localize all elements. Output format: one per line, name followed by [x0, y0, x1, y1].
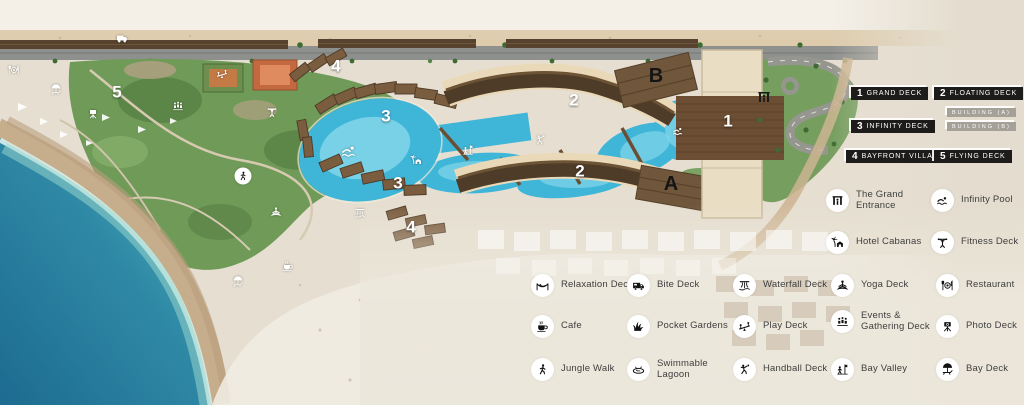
amenity-infinity-pool: Infinity Pool [931, 189, 1013, 212]
map-handball-deck-icon [534, 134, 546, 146]
road-buildings [0, 39, 698, 49]
marker-infinity-deck-north: 3 [381, 108, 390, 125]
legend-flying-deck: 5 FLYING DECK [934, 150, 1012, 163]
amenity-events-gathering-deck: Events & Gathering Deck [831, 310, 939, 333]
map-photo-deck-icon [87, 108, 99, 120]
map-restaurant-icon [8, 64, 20, 76]
amenity-hotel-cabanas: Hotel Cabanas [826, 231, 921, 254]
map-jungle-walk-icon [235, 168, 252, 185]
walking-person-icon [531, 358, 554, 381]
amenity-photo-deck: Photo Deck [936, 315, 1017, 338]
map-play-deck-icon [216, 68, 228, 80]
amenity-yoga-deck: Yoga Deck [831, 274, 908, 297]
yoga-icon [831, 274, 854, 297]
resort-masterplan: 5 4 3 3 4 2 2 1 B A 1 GRAND DECK 2 FLOAT… [0, 0, 1024, 405]
marker-bayfront-villas-south: 4 [406, 219, 415, 236]
lagoon-icon [627, 358, 650, 381]
legend-label: BAYFRONT VILLAS [862, 153, 939, 160]
map-waterfall-deck-icon [354, 207, 366, 219]
seesaw-icon [733, 315, 756, 338]
legend-floating-deck: 2 FLOATING DECK [934, 87, 1023, 100]
map-bite-deck-icon [116, 32, 128, 44]
marker-floating-deck-north: 2 [569, 92, 578, 109]
map-events-deck-icon [172, 100, 184, 112]
map-cafe-icon [282, 260, 294, 272]
legend-label: INFINITY DECK [867, 123, 929, 130]
waterfall-icon [733, 274, 756, 297]
amenity-bay-valley: Bay Valley [831, 358, 907, 381]
amenity-cafe: Cafe [531, 315, 582, 338]
amenity-fitness-deck: Fitness Deck [931, 231, 1018, 254]
amenity-grand-entrance: The Grand Entrance [826, 189, 934, 212]
hammock-icon [531, 274, 554, 297]
legend-label: FLOATING DECK [950, 90, 1018, 97]
legend-number: 5 [940, 151, 946, 162]
entrance-icon [826, 189, 849, 212]
map-beach-umbrella-icon [232, 276, 244, 288]
legend-bayfront-villas: 4 BAYFRONT VILLAS [846, 150, 944, 163]
crowd-icon [831, 310, 854, 333]
amenity-waterfall-deck: Waterfall Deck [733, 274, 827, 297]
map-bay-valley-icon [462, 144, 474, 156]
camera-tripod-icon [936, 315, 959, 338]
legend-number: 1 [857, 88, 863, 99]
map-yoga-deck-icon [270, 206, 282, 218]
map-grand-entrance-icon [757, 90, 772, 105]
marker-bayfront-villas-north: 4 [331, 58, 340, 75]
legend-label: GRAND DECK [867, 90, 923, 97]
marker-grand-deck: 1 [723, 113, 732, 130]
legend-grand-deck: 1 GRAND DECK [851, 87, 928, 100]
restaurant-icon [936, 274, 959, 297]
amenity-handball-deck: Handball Deck [733, 358, 827, 381]
fitness-icon [931, 231, 954, 254]
swimmer-icon [931, 189, 954, 212]
amenity-restaurant: Restaurant [936, 274, 1014, 297]
legend-number: 3 [857, 121, 863, 132]
legend-building-b: BUILDING (B) [947, 122, 1016, 131]
map-fitness-deck-icon [266, 106, 278, 118]
coffee-cup-icon [531, 315, 554, 338]
food-truck-icon [627, 274, 650, 297]
legend-label: FLYING DECK [950, 153, 1006, 160]
marker-building-b: B [649, 66, 663, 86]
map-hotel-cabanas-icon [410, 154, 422, 166]
amenity-relaxation-deck: Relaxation Deck [531, 274, 633, 297]
beach-umbrella-icon [936, 358, 959, 381]
marker-infinity-deck-south: 3 [393, 175, 402, 192]
amenity-pocket-gardens: Pocket Gardens [627, 315, 728, 338]
legend-building-a: BUILDING (A) [947, 108, 1016, 117]
map-bay-deck-icon [50, 84, 62, 96]
map-infinity-pool-icon [672, 125, 684, 137]
marker-flying-deck: 5 [112, 84, 121, 101]
cabana-icon [826, 231, 849, 254]
grass-icon [627, 315, 650, 338]
amenity-play-deck: Play Deck [733, 315, 808, 338]
legend-number: 4 [852, 151, 858, 162]
map-swimmable-lagoon-icon [341, 143, 358, 160]
handball-player-icon [733, 358, 756, 381]
flag-person-icon [831, 358, 854, 381]
marker-building-a: A [664, 174, 678, 194]
amenity-bite-deck: Bite Deck [627, 274, 699, 297]
marker-floating-deck-south: 2 [575, 163, 584, 180]
amenity-jungle-walk: Jungle Walk [531, 358, 615, 381]
amenity-swimmable-lagoon: Swimmable Lagoon [627, 358, 735, 381]
amenity-bay-deck: Bay Deck [936, 358, 1008, 381]
legend-infinity-deck: 3 INFINITY DECK [851, 120, 935, 133]
legend-number: 2 [940, 88, 946, 99]
